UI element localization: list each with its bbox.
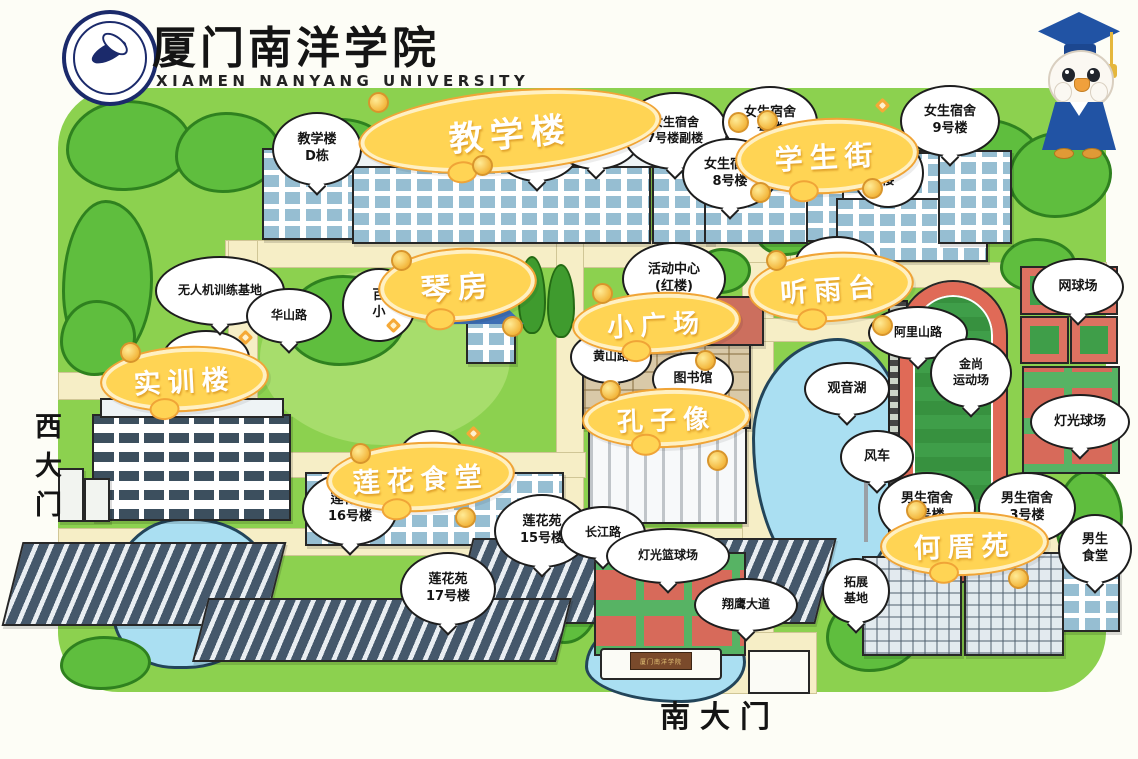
building-lotus-17 bbox=[192, 598, 572, 662]
mascot-eagle bbox=[1026, 6, 1134, 158]
university-title: 厦门南洋学院 bbox=[152, 12, 440, 76]
mascot-hand-right bbox=[1090, 82, 1108, 102]
bubble-lotus-17: 莲花苑 17号楼 bbox=[400, 552, 496, 626]
bubble-huashan-road: 华山路 bbox=[246, 288, 332, 344]
bubble-xiangying-avenue: 翔鹰大道 bbox=[694, 578, 798, 632]
university-title-en: XIAMEN NANYANG UNIVERSITY bbox=[156, 72, 529, 90]
bubble-light-court: 灯光球场 bbox=[1030, 394, 1130, 450]
coin-icon bbox=[695, 350, 716, 371]
coin-icon bbox=[502, 316, 523, 337]
south-gate-booth bbox=[748, 650, 810, 694]
coin-icon bbox=[707, 450, 728, 471]
building-training bbox=[92, 414, 291, 521]
coin-icon bbox=[592, 283, 613, 304]
bubble-expansion-base: 拓展 基地 bbox=[822, 558, 890, 624]
coin-icon bbox=[120, 342, 141, 363]
windmill-pole bbox=[864, 478, 868, 542]
bubble-tennis-court: 网球场 bbox=[1032, 258, 1124, 316]
university-seal bbox=[62, 10, 158, 106]
coin-icon bbox=[1008, 568, 1029, 589]
west-gate-label: 西大门 bbox=[26, 412, 65, 529]
mascot-foot-right bbox=[1082, 148, 1102, 159]
coin-icon bbox=[757, 110, 778, 131]
campus-map: 厦门南洋学院 XIAMEN NANYANG UNIVERSITY bbox=[0, 0, 1138, 759]
bubble-boys-canteen: 男生 食堂 bbox=[1058, 514, 1132, 584]
coin-icon bbox=[455, 507, 476, 528]
coin-icon bbox=[368, 92, 389, 113]
coin-icon bbox=[906, 500, 927, 521]
south-gate-sign: 厦门南洋学院 bbox=[630, 652, 692, 670]
coin-icon bbox=[872, 315, 893, 336]
coin-icon bbox=[600, 380, 621, 401]
bubble-guanyin-lake: 观音湖 bbox=[804, 362, 890, 416]
tennis-court-cell bbox=[1022, 318, 1067, 363]
mascot-beak bbox=[1074, 78, 1090, 92]
coin-icon bbox=[391, 250, 412, 271]
west-gate-booth bbox=[84, 478, 110, 522]
mascot-hand-left bbox=[1054, 82, 1072, 102]
bubble-light-basketball: 灯光篮球场 bbox=[606, 528, 730, 584]
cap-tassel-icon bbox=[1110, 32, 1113, 66]
mascot-foot-left bbox=[1054, 148, 1074, 159]
mascot-eye-left bbox=[1062, 68, 1075, 82]
building-teaching-main bbox=[352, 163, 651, 244]
mascot-head bbox=[1048, 50, 1114, 110]
bubble-jinshang-field: 金尚 运动场 bbox=[930, 338, 1012, 408]
coin-icon bbox=[750, 182, 771, 203]
coin-icon bbox=[766, 250, 787, 271]
coin-icon bbox=[472, 155, 493, 176]
coin-icon bbox=[728, 112, 749, 133]
south-gate-label: 南大门 bbox=[660, 692, 780, 736]
coin-icon bbox=[862, 178, 883, 199]
bubble-teaching-d: 教学楼 D栋 bbox=[272, 112, 362, 186]
coin-icon bbox=[350, 443, 371, 464]
